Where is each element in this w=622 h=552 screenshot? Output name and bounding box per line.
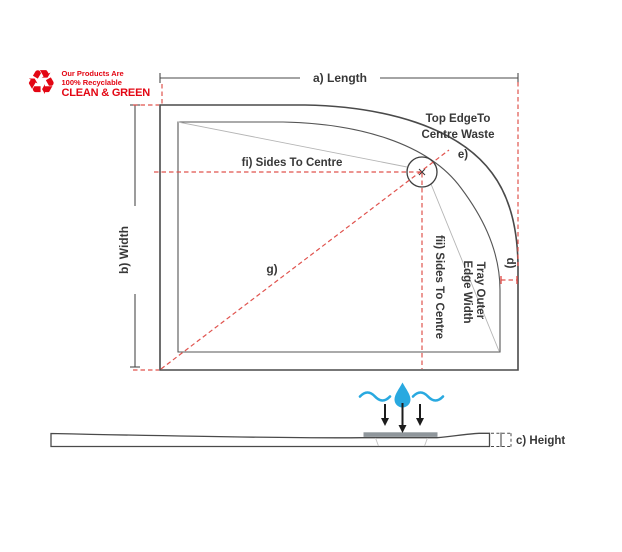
wave-right-icon (413, 393, 443, 401)
tray-outer-edge-width-label: Tray Outer Edge Width (461, 260, 486, 323)
tray-outer-edge-width-line1: Tray Outer (474, 262, 486, 320)
d-label: d) (504, 258, 516, 269)
wave-left-icon (360, 393, 390, 401)
g-label: g) (266, 262, 277, 276)
waste-cover-bar (364, 432, 438, 437)
top-edge-label-line2: Centre Waste (421, 129, 494, 141)
top-edge-label-line1: Top EdgeTo (426, 113, 491, 125)
sides-to-centre-ii-label: fii) Sides To Centre (433, 235, 445, 339)
e-label: e) (458, 149, 468, 161)
height-label: c) Height (516, 435, 565, 447)
flow-arrow-right-head (416, 418, 424, 426)
diagonal-g-line (161, 150, 449, 369)
width-label: b) Width (117, 226, 131, 274)
flow-arrow-mid-head (399, 425, 407, 433)
sides-to-centre-i-label: fi) Sides To Centre (242, 157, 343, 169)
tray-outer-outline (160, 105, 518, 370)
length-label: a) Length (313, 71, 367, 85)
flow-arrow-left-head (381, 418, 389, 426)
page: ♻ Our Products Are 100% Recyclable CLEAN… (0, 0, 622, 552)
tray-outer-edge-width-line2: Edge Width (461, 260, 473, 323)
tray-diagram: a) Length b) Width fi) Sides To Centre T… (0, 0, 622, 552)
